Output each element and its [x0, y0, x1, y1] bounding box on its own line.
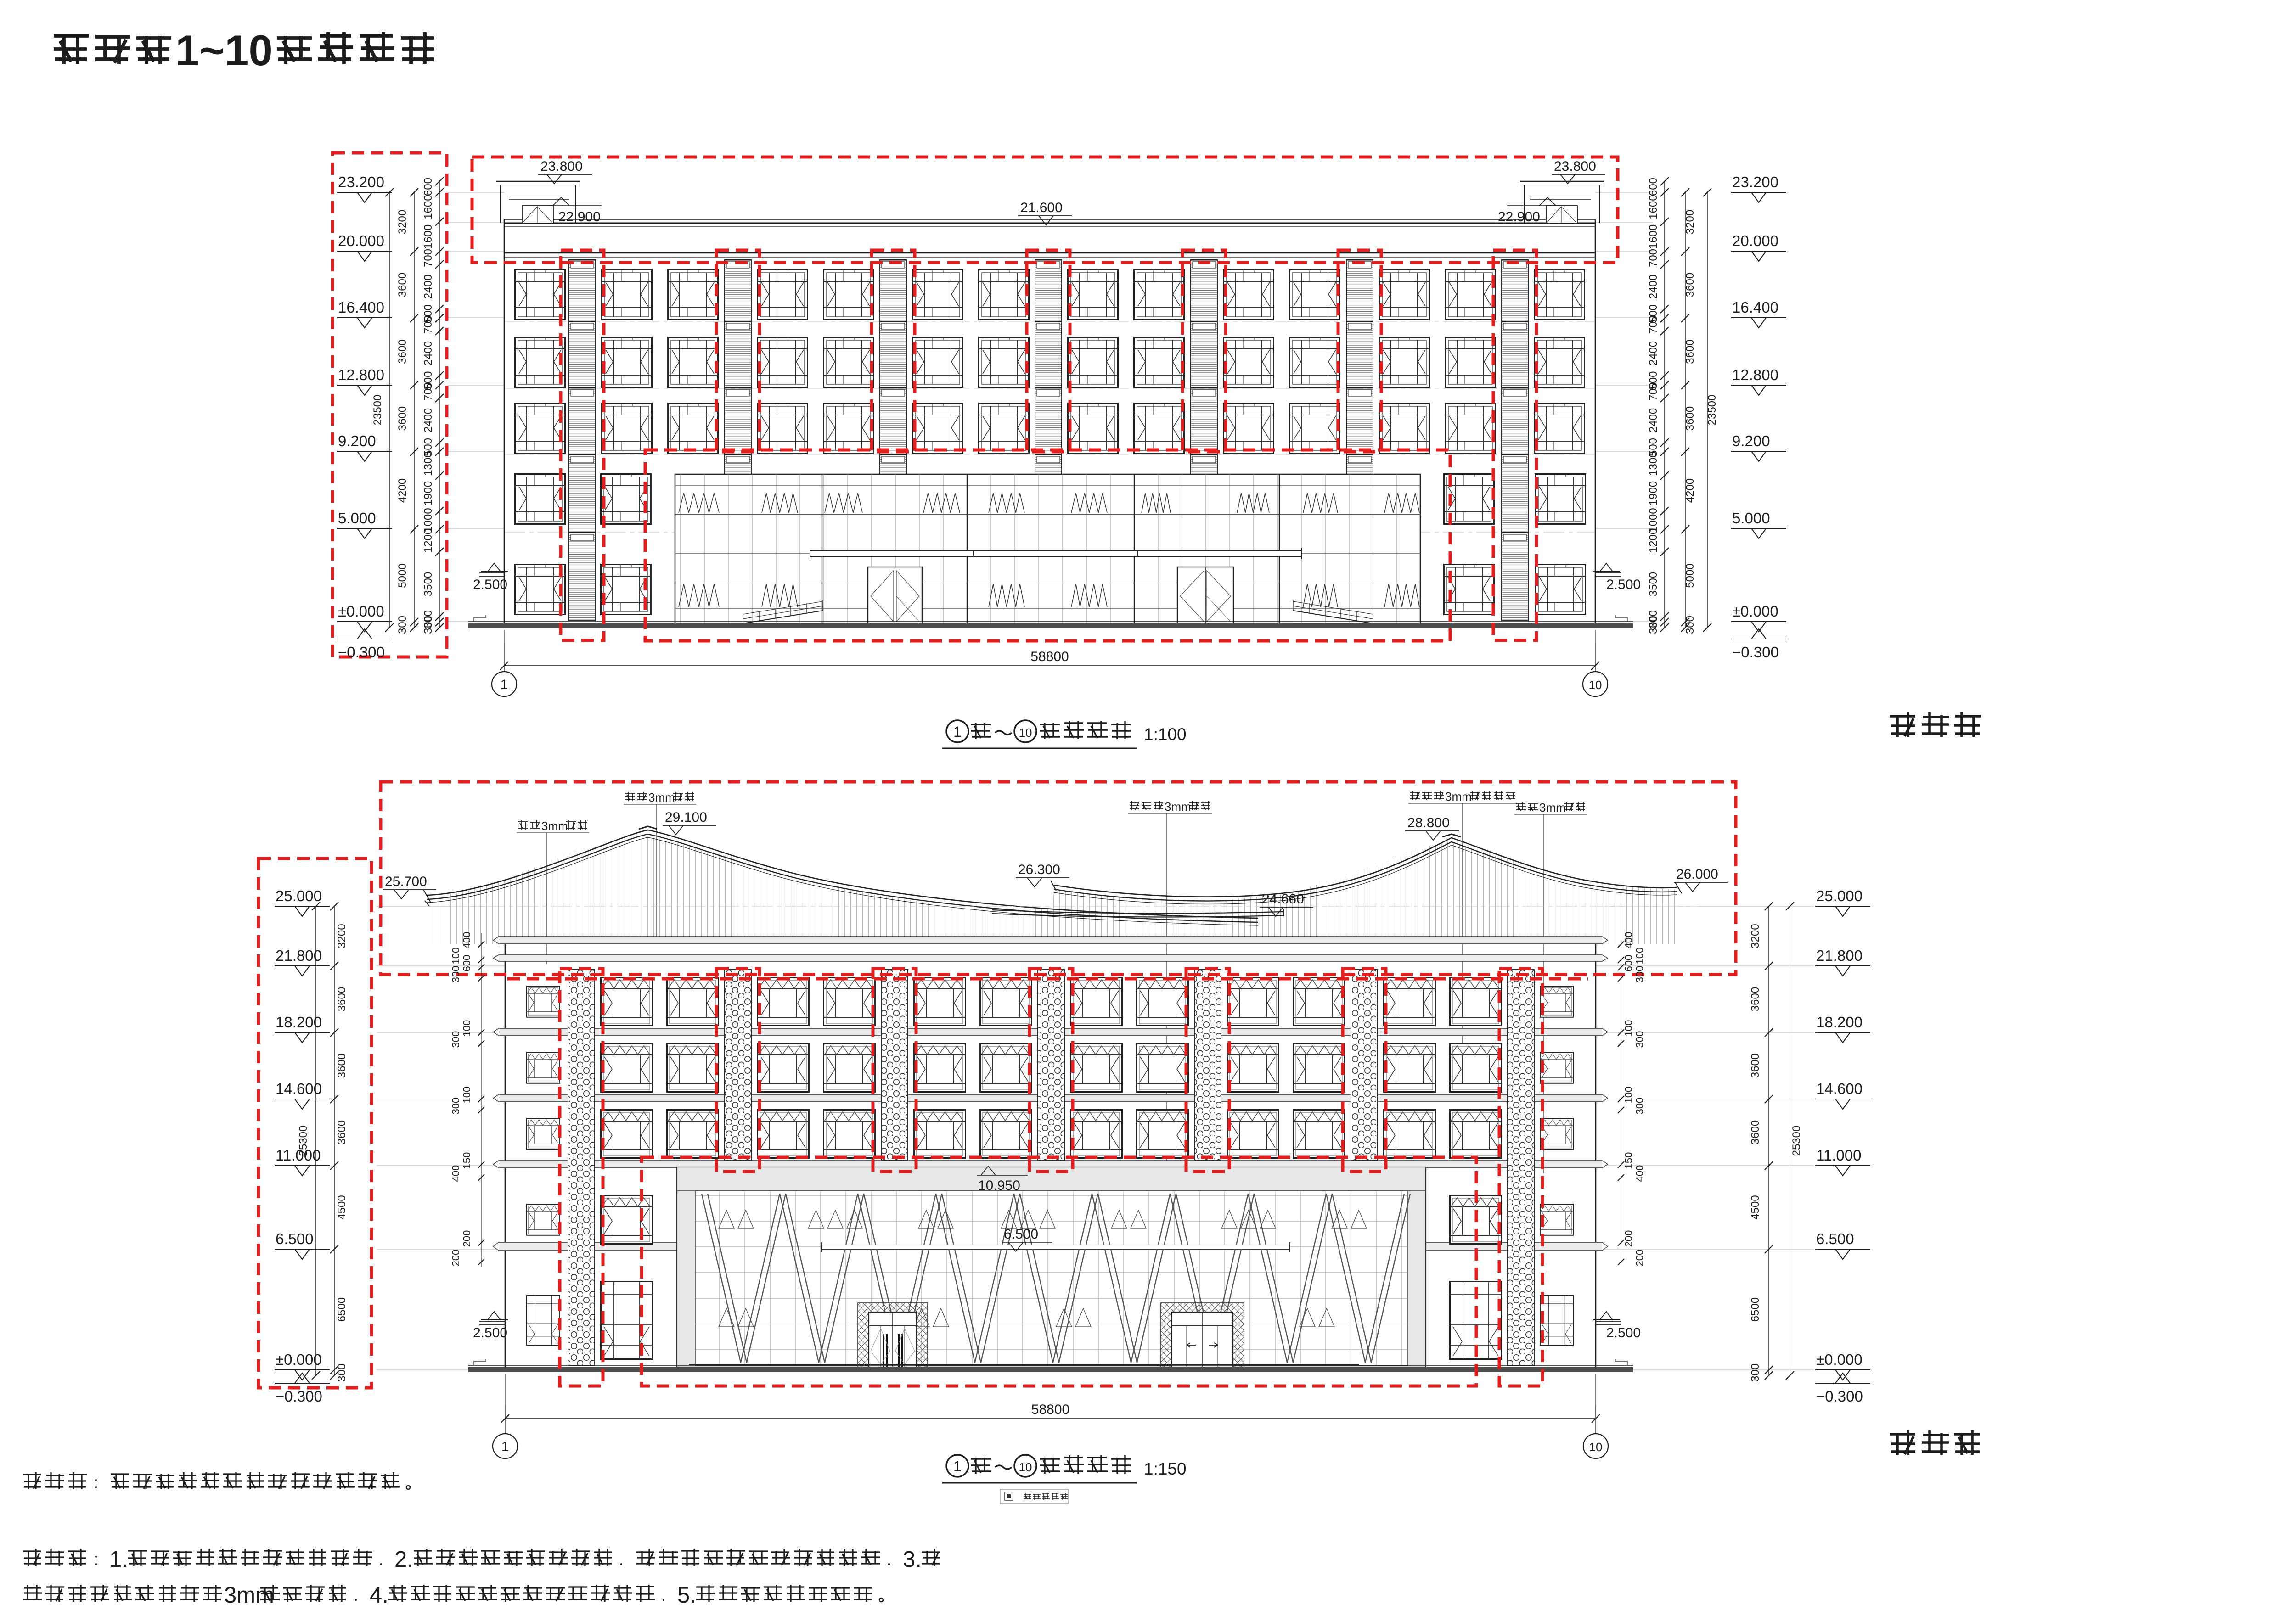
svg-text:1600: 1600 [1647, 224, 1660, 249]
svg-text:10: 10 [1019, 1460, 1032, 1474]
svg-text:3600: 3600 [336, 1120, 348, 1144]
svg-text:25.000: 25.000 [276, 887, 322, 904]
svg-text:100: 100 [450, 948, 461, 965]
svg-text:300: 300 [450, 1031, 461, 1048]
svg-text:300: 300 [1684, 616, 1696, 634]
svg-text:700: 700 [1647, 382, 1660, 401]
svg-text:5.000: 5.000 [338, 510, 376, 527]
svg-text:400: 400 [1623, 932, 1634, 949]
svg-text:10: 10 [1019, 726, 1032, 740]
svg-text:400: 400 [1634, 1165, 1645, 1182]
svg-text:400: 400 [450, 1165, 461, 1182]
svg-text:1: 1 [953, 724, 962, 740]
svg-text:5.: 5. [677, 1583, 696, 1608]
svg-text:21.800: 21.800 [276, 947, 322, 964]
svg-text:5000: 5000 [1684, 563, 1696, 588]
svg-text:700: 700 [422, 382, 434, 401]
svg-text:1.: 1. [109, 1547, 128, 1572]
svg-text:±0.000: ±0.000 [1732, 603, 1778, 620]
svg-text:3600: 3600 [336, 1054, 348, 1078]
svg-text:22.900: 22.900 [1498, 209, 1540, 224]
svg-text:300: 300 [1634, 966, 1645, 983]
svg-text:2.500: 2.500 [1606, 577, 1641, 592]
svg-text:3600: 3600 [396, 273, 409, 297]
svg-text:600: 600 [422, 178, 434, 196]
svg-text:3600: 3600 [1684, 406, 1696, 431]
svg-text:14.600: 14.600 [276, 1080, 322, 1097]
svg-text:100: 100 [1634, 948, 1645, 965]
svg-text:26.000: 26.000 [1676, 867, 1718, 882]
svg-text:3mm: 3mm [648, 791, 675, 804]
svg-text:600: 600 [461, 955, 473, 972]
svg-text:5.000: 5.000 [1732, 510, 1770, 527]
svg-text:−0.300: −0.300 [1732, 644, 1779, 661]
svg-text:1300: 1300 [1647, 451, 1660, 476]
svg-text:3600: 3600 [336, 987, 348, 1011]
svg-text:1: 1 [501, 1439, 509, 1454]
svg-text:200: 200 [461, 1230, 473, 1247]
svg-text:300: 300 [1647, 616, 1660, 634]
svg-text:12.800: 12.800 [1732, 366, 1778, 383]
svg-text:4200: 4200 [396, 478, 409, 503]
svg-text:300: 300 [1634, 1098, 1645, 1115]
svg-text:20.000: 20.000 [338, 232, 384, 249]
svg-text:58800: 58800 [1030, 649, 1069, 664]
svg-text:11.000: 11.000 [1816, 1147, 1861, 1164]
svg-text:3200: 3200 [1749, 924, 1761, 948]
svg-text:700: 700 [1647, 315, 1660, 334]
svg-text:600: 600 [1647, 178, 1660, 196]
svg-text:300: 300 [336, 1363, 348, 1382]
svg-text:1600: 1600 [1647, 195, 1660, 219]
svg-text:4.: 4. [370, 1583, 388, 1608]
svg-text:25.000: 25.000 [1816, 887, 1863, 904]
svg-text:600: 600 [1623, 955, 1634, 972]
svg-text:3mm: 3mm [1165, 800, 1191, 813]
svg-text:2400: 2400 [422, 341, 434, 365]
svg-text:6.500: 6.500 [1816, 1230, 1854, 1247]
svg-text:9.200: 9.200 [338, 432, 376, 449]
svg-text:1600: 1600 [422, 195, 434, 219]
svg-text:11.000: 11.000 [276, 1147, 321, 1164]
svg-text:1200: 1200 [422, 528, 434, 553]
svg-text:23.800: 23.800 [1554, 159, 1596, 174]
svg-text:28.800: 28.800 [1407, 815, 1450, 830]
svg-text:2400: 2400 [1647, 341, 1660, 365]
svg-text:−0.300: −0.300 [276, 1388, 322, 1405]
svg-text:300: 300 [450, 966, 461, 983]
svg-text:100: 100 [461, 1020, 473, 1037]
svg-text:6500: 6500 [1749, 1297, 1761, 1322]
svg-text:3600: 3600 [1749, 1054, 1761, 1078]
svg-text:−0.300: −0.300 [1816, 1388, 1863, 1405]
svg-text:22.900: 22.900 [558, 209, 601, 224]
svg-text:700: 700 [1647, 249, 1660, 267]
svg-text:20.000: 20.000 [1732, 232, 1778, 249]
svg-text:2400: 2400 [422, 275, 434, 299]
svg-text:2.: 2. [394, 1547, 413, 1572]
svg-text:21.600: 21.600 [1020, 200, 1063, 215]
svg-text:300: 300 [1634, 1031, 1645, 1048]
svg-text:±0.000: ±0.000 [1816, 1351, 1863, 1368]
svg-text:700: 700 [422, 315, 434, 334]
svg-text:100: 100 [461, 1087, 473, 1104]
svg-text:300: 300 [396, 616, 409, 634]
svg-text:23.200: 23.200 [338, 174, 384, 191]
svg-text:29.100: 29.100 [665, 810, 707, 825]
svg-text:1200: 1200 [1647, 528, 1660, 553]
svg-text:1600: 1600 [422, 224, 434, 249]
svg-text:2400: 2400 [1647, 275, 1660, 299]
svg-text:1:150: 1:150 [1144, 1459, 1187, 1478]
svg-text:6.500: 6.500 [276, 1230, 314, 1247]
svg-text:100: 100 [1623, 1087, 1634, 1104]
svg-text:2.500: 2.500 [473, 577, 507, 592]
svg-text:1300: 1300 [422, 451, 434, 476]
svg-text:3200: 3200 [1684, 210, 1696, 234]
svg-text:3200: 3200 [396, 210, 409, 234]
svg-text:300: 300 [422, 616, 434, 634]
svg-text:21.800: 21.800 [1816, 947, 1863, 964]
svg-text:3500: 3500 [422, 572, 434, 596]
svg-text:10: 10 [1589, 1440, 1603, 1454]
svg-text:3500: 3500 [1647, 572, 1660, 596]
svg-text:25.700: 25.700 [385, 874, 427, 889]
svg-text:±0.000: ±0.000 [276, 1351, 322, 1368]
svg-text:700: 700 [422, 249, 434, 267]
svg-text:300: 300 [1749, 1363, 1761, 1382]
svg-text:3600: 3600 [396, 339, 409, 364]
svg-text:3200: 3200 [336, 924, 348, 948]
svg-text:3600: 3600 [1749, 987, 1761, 1011]
svg-text:4500: 4500 [1749, 1195, 1761, 1219]
svg-text:3600: 3600 [1684, 273, 1696, 297]
svg-text:4200: 4200 [1684, 478, 1696, 503]
svg-text:1~10: 1~10 [175, 26, 273, 74]
svg-text:2.500: 2.500 [473, 1325, 507, 1341]
svg-text:2.500: 2.500 [1606, 1325, 1641, 1341]
svg-text:18.200: 18.200 [276, 1014, 322, 1031]
svg-text:9.200: 9.200 [1732, 432, 1770, 449]
svg-text:16.400: 16.400 [338, 299, 384, 316]
svg-text:3mm: 3mm [1539, 801, 1566, 814]
svg-text:5000: 5000 [396, 563, 409, 588]
svg-text:200: 200 [1623, 1230, 1634, 1247]
svg-text:1900: 1900 [422, 481, 434, 505]
svg-text:3mm: 3mm [541, 819, 568, 833]
svg-text:3600: 3600 [1684, 339, 1696, 364]
svg-text:10: 10 [1589, 678, 1602, 692]
svg-text:200: 200 [1634, 1250, 1645, 1267]
svg-text:300: 300 [450, 1098, 461, 1115]
svg-text:58800: 58800 [1031, 1402, 1069, 1417]
svg-text:2400: 2400 [1647, 408, 1660, 432]
svg-text:23.800: 23.800 [540, 159, 583, 174]
svg-text:1:100: 1:100 [1144, 725, 1187, 744]
svg-text:3600: 3600 [1749, 1120, 1761, 1144]
svg-text:12.800: 12.800 [338, 366, 384, 383]
svg-text:14.600: 14.600 [1816, 1080, 1863, 1097]
svg-text:−0.300: −0.300 [338, 644, 385, 661]
svg-text:±0.000: ±0.000 [338, 603, 384, 620]
svg-text:23.200: 23.200 [1732, 174, 1778, 191]
svg-text:25300: 25300 [1790, 1126, 1803, 1156]
svg-text:3600: 3600 [396, 406, 409, 431]
svg-text:4500: 4500 [336, 1195, 348, 1219]
svg-text:3.: 3. [903, 1547, 922, 1572]
svg-text:3mm: 3mm [1445, 790, 1472, 803]
svg-text:1900: 1900 [1647, 481, 1660, 505]
svg-text:23500: 23500 [371, 395, 384, 426]
svg-text:1: 1 [501, 677, 508, 692]
svg-text:100: 100 [1623, 1020, 1634, 1037]
svg-text:150: 150 [461, 1152, 473, 1169]
svg-text:2400: 2400 [422, 408, 434, 432]
svg-text:6500: 6500 [336, 1297, 348, 1322]
svg-text:200: 200 [450, 1250, 461, 1267]
svg-text:23500: 23500 [1706, 395, 1718, 426]
svg-text:16.400: 16.400 [1732, 299, 1778, 316]
svg-text:400: 400 [461, 932, 473, 949]
svg-text:1: 1 [953, 1458, 962, 1475]
svg-text:150: 150 [1623, 1152, 1634, 1169]
svg-text:6.500: 6.500 [1004, 1227, 1038, 1242]
svg-text:26.300: 26.300 [1018, 862, 1060, 877]
svg-text:18.200: 18.200 [1816, 1014, 1863, 1031]
